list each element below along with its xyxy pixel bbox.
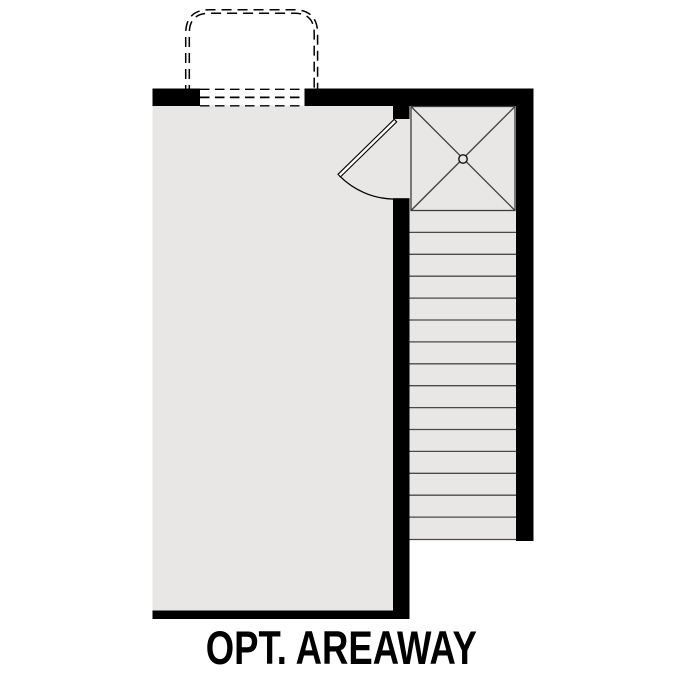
svg-text:OPT. AREAWAY: OPT. AREAWAY [206, 622, 477, 675]
